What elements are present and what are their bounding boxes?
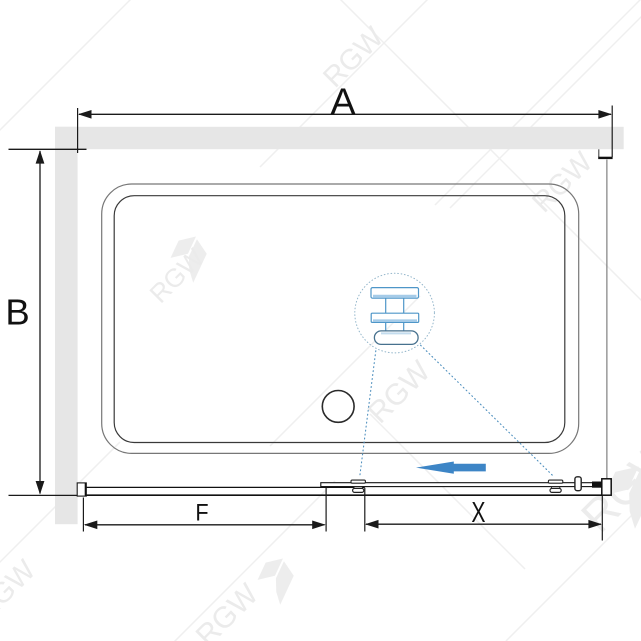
svg-text:F: F bbox=[195, 499, 208, 526]
svg-text:A: A bbox=[330, 80, 355, 122]
svg-text:B: B bbox=[5, 292, 29, 333]
svg-text:X: X bbox=[471, 497, 485, 529]
